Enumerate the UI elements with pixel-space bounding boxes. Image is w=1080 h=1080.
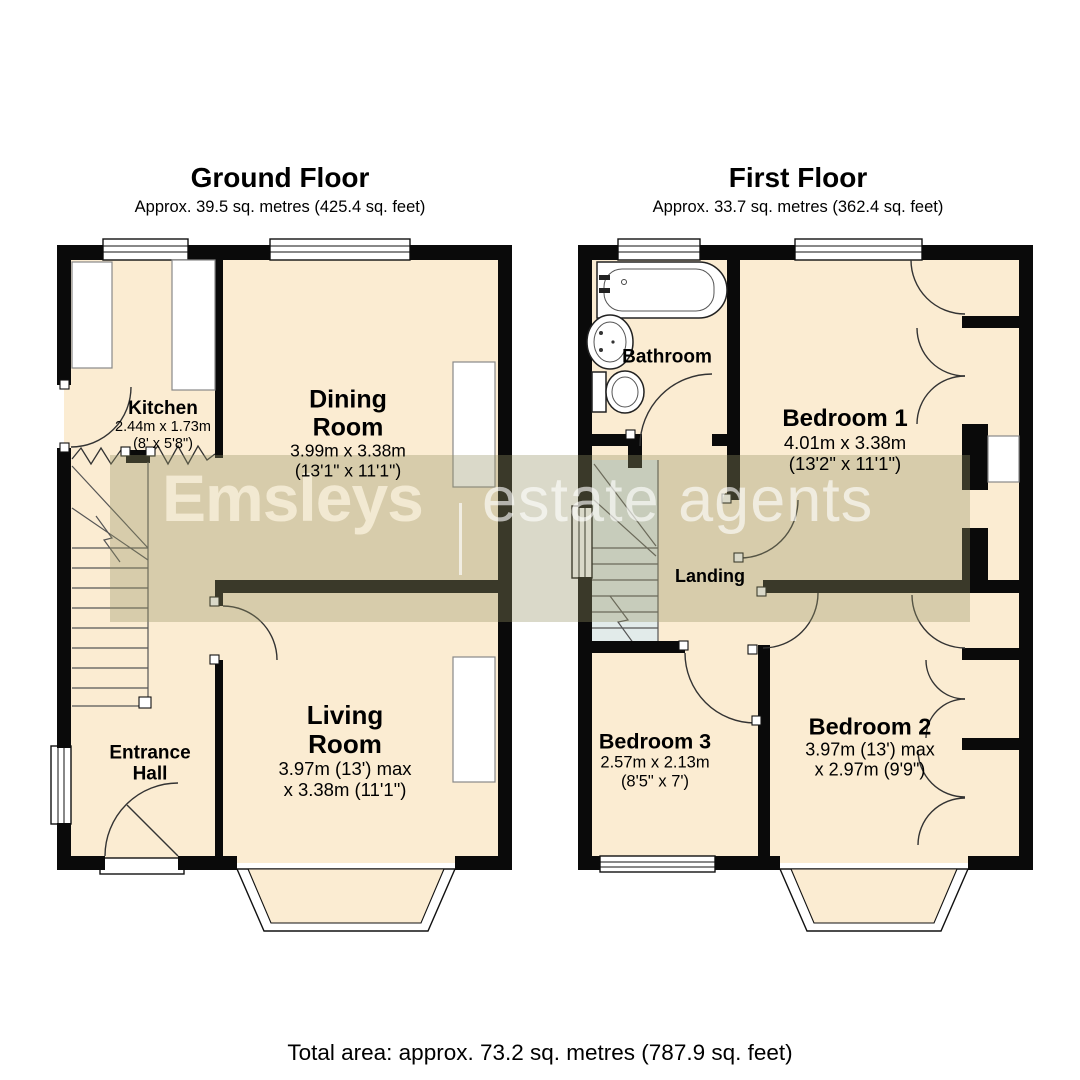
room-label-dining: Dining Room 3.99m x 3.38m (13'1" x 11'1"…	[283, 385, 413, 480]
room-label-bedroom3: Bedroom 3 2.57m x 2.13m (8'5" x 7')	[565, 729, 745, 790]
room-name: Landing	[655, 566, 765, 586]
room-size-m: 4.01m x 3.38m	[735, 433, 955, 454]
room-name: Bedroom 3	[565, 729, 745, 753]
watermark-tagline: estate agents	[482, 469, 873, 532]
room-label-entrance-hall: Entrance Hall	[95, 743, 205, 786]
room-label-kitchen: Kitchen 2.44m x 1.73m (8' x 5'8")	[88, 398, 238, 452]
room-size-ft: (8' x 5'8")	[88, 436, 238, 452]
room-size-m: 3.97m (13') max	[760, 740, 980, 760]
toilet-icon	[592, 371, 644, 413]
room-name: Entrance Hall	[95, 743, 205, 786]
room-label-living: Living Room 3.97m (13') max x 3.38m (11'…	[275, 701, 415, 801]
first-floor-header: First Floor Approx. 33.7 sq. metres (362…	[653, 163, 944, 217]
wardrobe-niche	[988, 436, 1019, 482]
ground-floor-subtitle: Approx. 39.5 sq. metres (425.4 sq. feet)	[135, 198, 426, 217]
ground-floor-header: Ground Floor Approx. 39.5 sq. metres (42…	[135, 163, 426, 217]
first-floor-subtitle: Approx. 33.7 sq. metres (362.4 sq. feet)	[653, 198, 944, 217]
watermark-separator	[459, 503, 462, 575]
watermark-band: Emsleys estate agents	[110, 455, 970, 622]
ground-floor-title: Ground Floor	[135, 163, 426, 194]
first-floor-title: First Floor	[653, 163, 944, 194]
room-size-ft: x 2.97m (9'9")	[760, 760, 980, 780]
room-label-landing: Landing	[655, 566, 765, 586]
bay-window-first	[780, 869, 968, 931]
room-label-bedroom1: Bedroom 1 4.01m x 3.38m (13'2" x 11'1")	[735, 406, 955, 474]
bay-window-ground	[237, 869, 455, 931]
room-size-m: 2.57m x 2.13m	[565, 754, 745, 772]
room-size-ft: (8'5" x 7')	[565, 772, 745, 790]
front-door-threshold	[100, 858, 184, 874]
room-label-bedroom2: Bedroom 2 3.97m (13') max x 2.97m (9'9")	[760, 714, 980, 781]
room-name: Dining Room	[283, 385, 413, 441]
room-name: Bedroom 2	[760, 714, 980, 740]
total-area-text: Total area: approx. 73.2 sq. metres (787…	[287, 1040, 792, 1066]
room-name: Kitchen	[88, 398, 238, 419]
room-size-m: 3.97m (13') max	[275, 759, 415, 780]
room-size-ft: (13'1" x 11'1")	[283, 461, 413, 481]
stair-newel	[139, 697, 151, 708]
room-size-ft: x 3.38m (11'1")	[275, 780, 415, 801]
room-size-m: 3.99m x 3.38m	[283, 441, 413, 461]
room-name: Bathroom	[602, 346, 732, 367]
room-name: Bedroom 1	[735, 406, 955, 433]
bathtub-icon	[597, 262, 727, 318]
room-size-m: 2.44m x 1.73m	[88, 419, 238, 435]
room-size-ft: (13'2" x 11'1")	[735, 453, 955, 474]
room-name: Living Room	[275, 701, 415, 759]
room-label-bathroom: Bathroom	[602, 346, 732, 367]
